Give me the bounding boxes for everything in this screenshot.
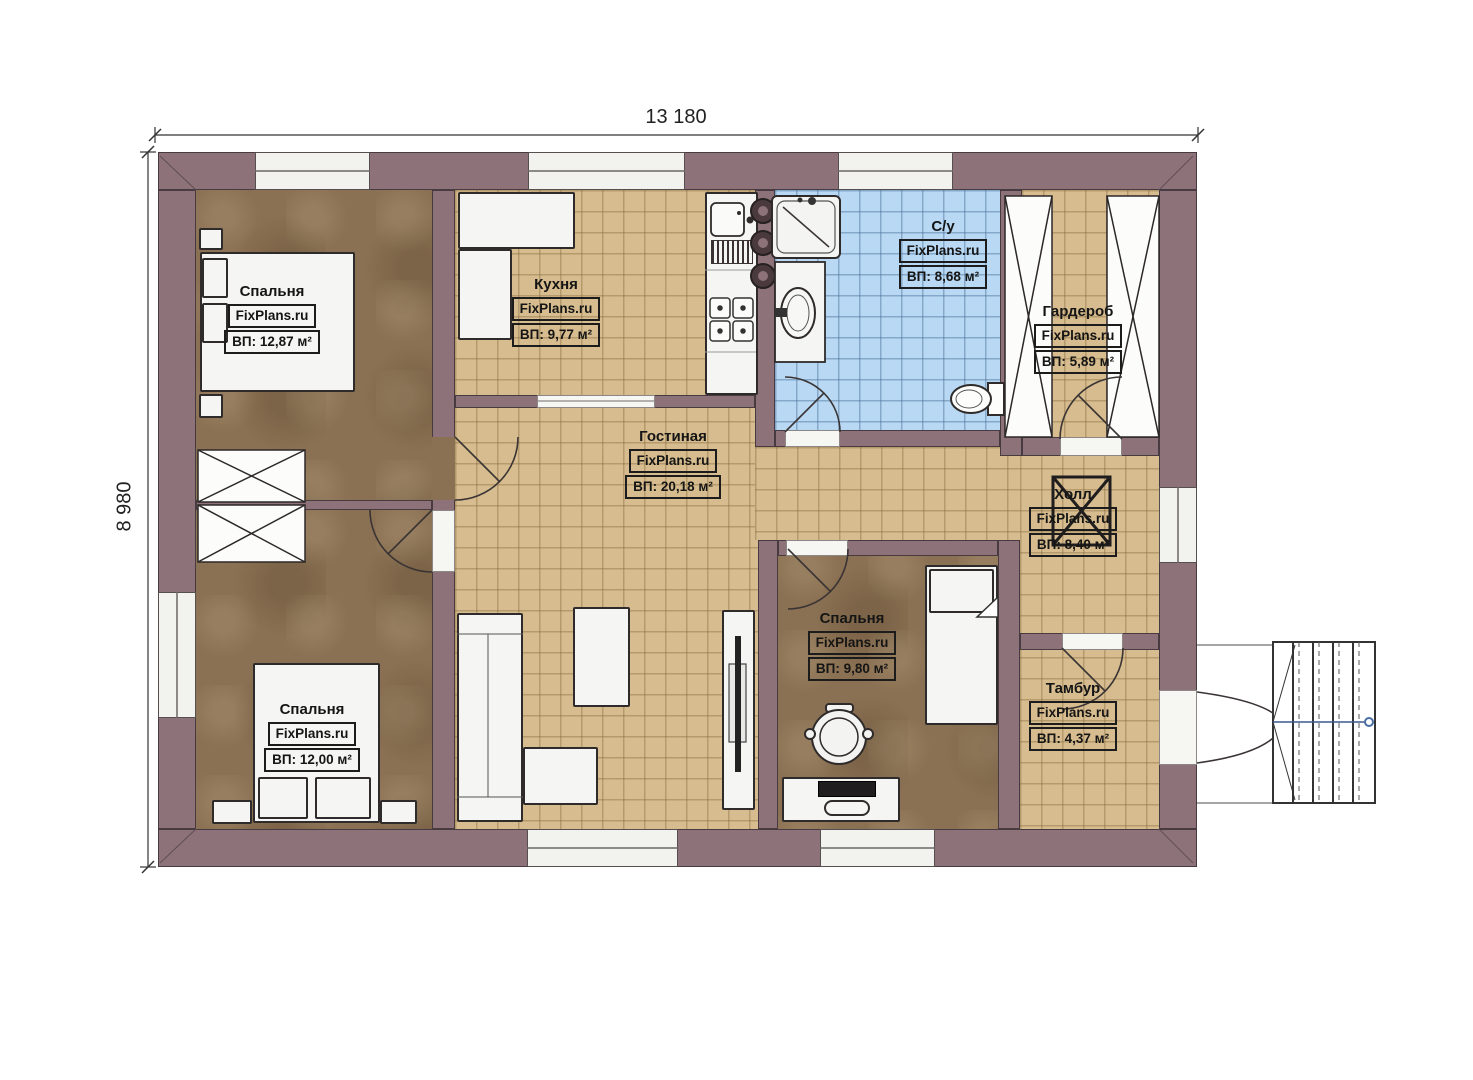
- room-watermark: FixPlans.ru: [1034, 324, 1123, 348]
- room-watermark: FixPlans.ru: [1029, 507, 1118, 531]
- room-title: Гостиная: [639, 428, 707, 445]
- room-title: Спальня: [240, 283, 305, 300]
- room-watermark: FixPlans.ru: [512, 297, 601, 321]
- room-label-bedroom-1: Спальня FixPlans.ru ВП: 12,87 м²: [213, 283, 331, 354]
- floor-plan: 13 180 8 980 Спальня FixPlans.ru ВП: 12,…: [0, 0, 1473, 1080]
- doorway-bedroom1: [432, 437, 455, 500]
- desk-chair: [824, 800, 870, 816]
- nightstand: [212, 800, 252, 824]
- window-living-bottom: [527, 829, 678, 867]
- tv-stand: [722, 610, 755, 810]
- nightstand: [380, 800, 417, 824]
- room-label-bathroom: С/у FixPlans.ru ВП: 8,68 м²: [886, 218, 1000, 289]
- room-watermark: FixPlans.ru: [228, 304, 317, 328]
- wall-bedroom2-left: [758, 540, 778, 829]
- room-area: ВП: 9,77 м²: [512, 323, 600, 347]
- wall-bedrooms-divider: [196, 500, 432, 510]
- dish-dryer: [711, 240, 753, 264]
- wall-bathroom-left: [755, 190, 775, 447]
- window-bathroom-top: [838, 152, 953, 190]
- wall-outer-left: [158, 190, 196, 829]
- room-area: ВП: 9,80 м²: [808, 657, 896, 681]
- room-label-hall: Холл FixPlans.ru ВП: 8,40 м²: [1016, 486, 1130, 557]
- kitchen-corner-sofa: [458, 192, 575, 249]
- room-area: ВП: 4,37 м²: [1029, 727, 1117, 751]
- nightstand: [199, 394, 223, 418]
- dimension-width-label: 13 180: [626, 106, 726, 129]
- doorway-tambour: [1062, 633, 1123, 650]
- window-hall-right: [1159, 487, 1197, 563]
- room-label-kitchen: Кухня FixPlans.ru ВП: 9,77 м²: [500, 276, 612, 347]
- doorway-kitchen-slider: [537, 395, 655, 408]
- room-title: Спальня: [820, 610, 885, 627]
- window-bedroom2-bottom: [820, 829, 935, 867]
- window-kitchen-top: [528, 152, 685, 190]
- room-title: Холл: [1054, 486, 1092, 503]
- pillow: [258, 777, 308, 819]
- room-watermark: FixPlans.ru: [629, 449, 718, 473]
- monitor: [818, 781, 876, 797]
- room-label-living-room: Гостиная FixPlans.ru ВП: 20,18 м²: [612, 428, 734, 499]
- room-area: ВП: 20,18 м²: [625, 475, 721, 499]
- coffee-table: [573, 607, 630, 707]
- room-area: ВП: 12,87 м²: [224, 330, 320, 354]
- room-title: Спальня: [280, 701, 345, 718]
- room-watermark: FixPlans.ru: [268, 722, 357, 746]
- room-label-bedroom-3: Спальня FixPlans.ru ВП: 12,00 м²: [250, 701, 374, 772]
- room-watermark: FixPlans.ru: [1029, 701, 1118, 725]
- door-arc-entrance: [1197, 692, 1284, 763]
- window-bedroom1-top: [255, 152, 370, 190]
- room-watermark: FixPlans.ru: [808, 631, 897, 655]
- room-label-bedroom-2: Спальня FixPlans.ru ВП: 9,80 м²: [796, 610, 908, 681]
- doorway-wardrobe: [1060, 437, 1122, 456]
- room-title: С/у: [931, 218, 954, 235]
- pillow: [315, 777, 371, 819]
- room-area: ВП: 12,00 м²: [264, 748, 360, 772]
- doorway-bedroom2: [786, 540, 848, 556]
- room-area: ВП: 5,89 м²: [1034, 350, 1122, 374]
- nightstand: [199, 228, 223, 250]
- room-label-wardrobe: Гардероб FixPlans.ru ВП: 5,89 м²: [1018, 303, 1138, 374]
- window-bedroom3-left: [158, 592, 196, 718]
- doorway-bathroom: [785, 430, 840, 447]
- room-title: Гардероб: [1043, 303, 1114, 320]
- room-label-tambour: Тамбур FixPlans.ru ВП: 4,37 м²: [1016, 680, 1130, 751]
- room-title: Кухня: [534, 276, 578, 293]
- living-ottoman: [523, 747, 598, 805]
- stairs-direction-marker: [1365, 718, 1373, 726]
- room-area: ВП: 8,68 м²: [899, 265, 987, 289]
- floor-corridor: [755, 447, 1020, 540]
- dimension-height-label: 8 980: [114, 467, 137, 547]
- kitchen-counter: [705, 192, 758, 395]
- room-title: Тамбур: [1046, 680, 1100, 697]
- living-sofa: [457, 613, 523, 822]
- room-area: ВП: 8,40 м²: [1029, 533, 1117, 557]
- pillow: [929, 569, 994, 613]
- entrance-stairs: [1197, 642, 1375, 803]
- door-leaf-bedroom3: [432, 510, 455, 572]
- room-watermark: FixPlans.ru: [899, 239, 988, 263]
- door-leaf-entrance: [1159, 690, 1197, 765]
